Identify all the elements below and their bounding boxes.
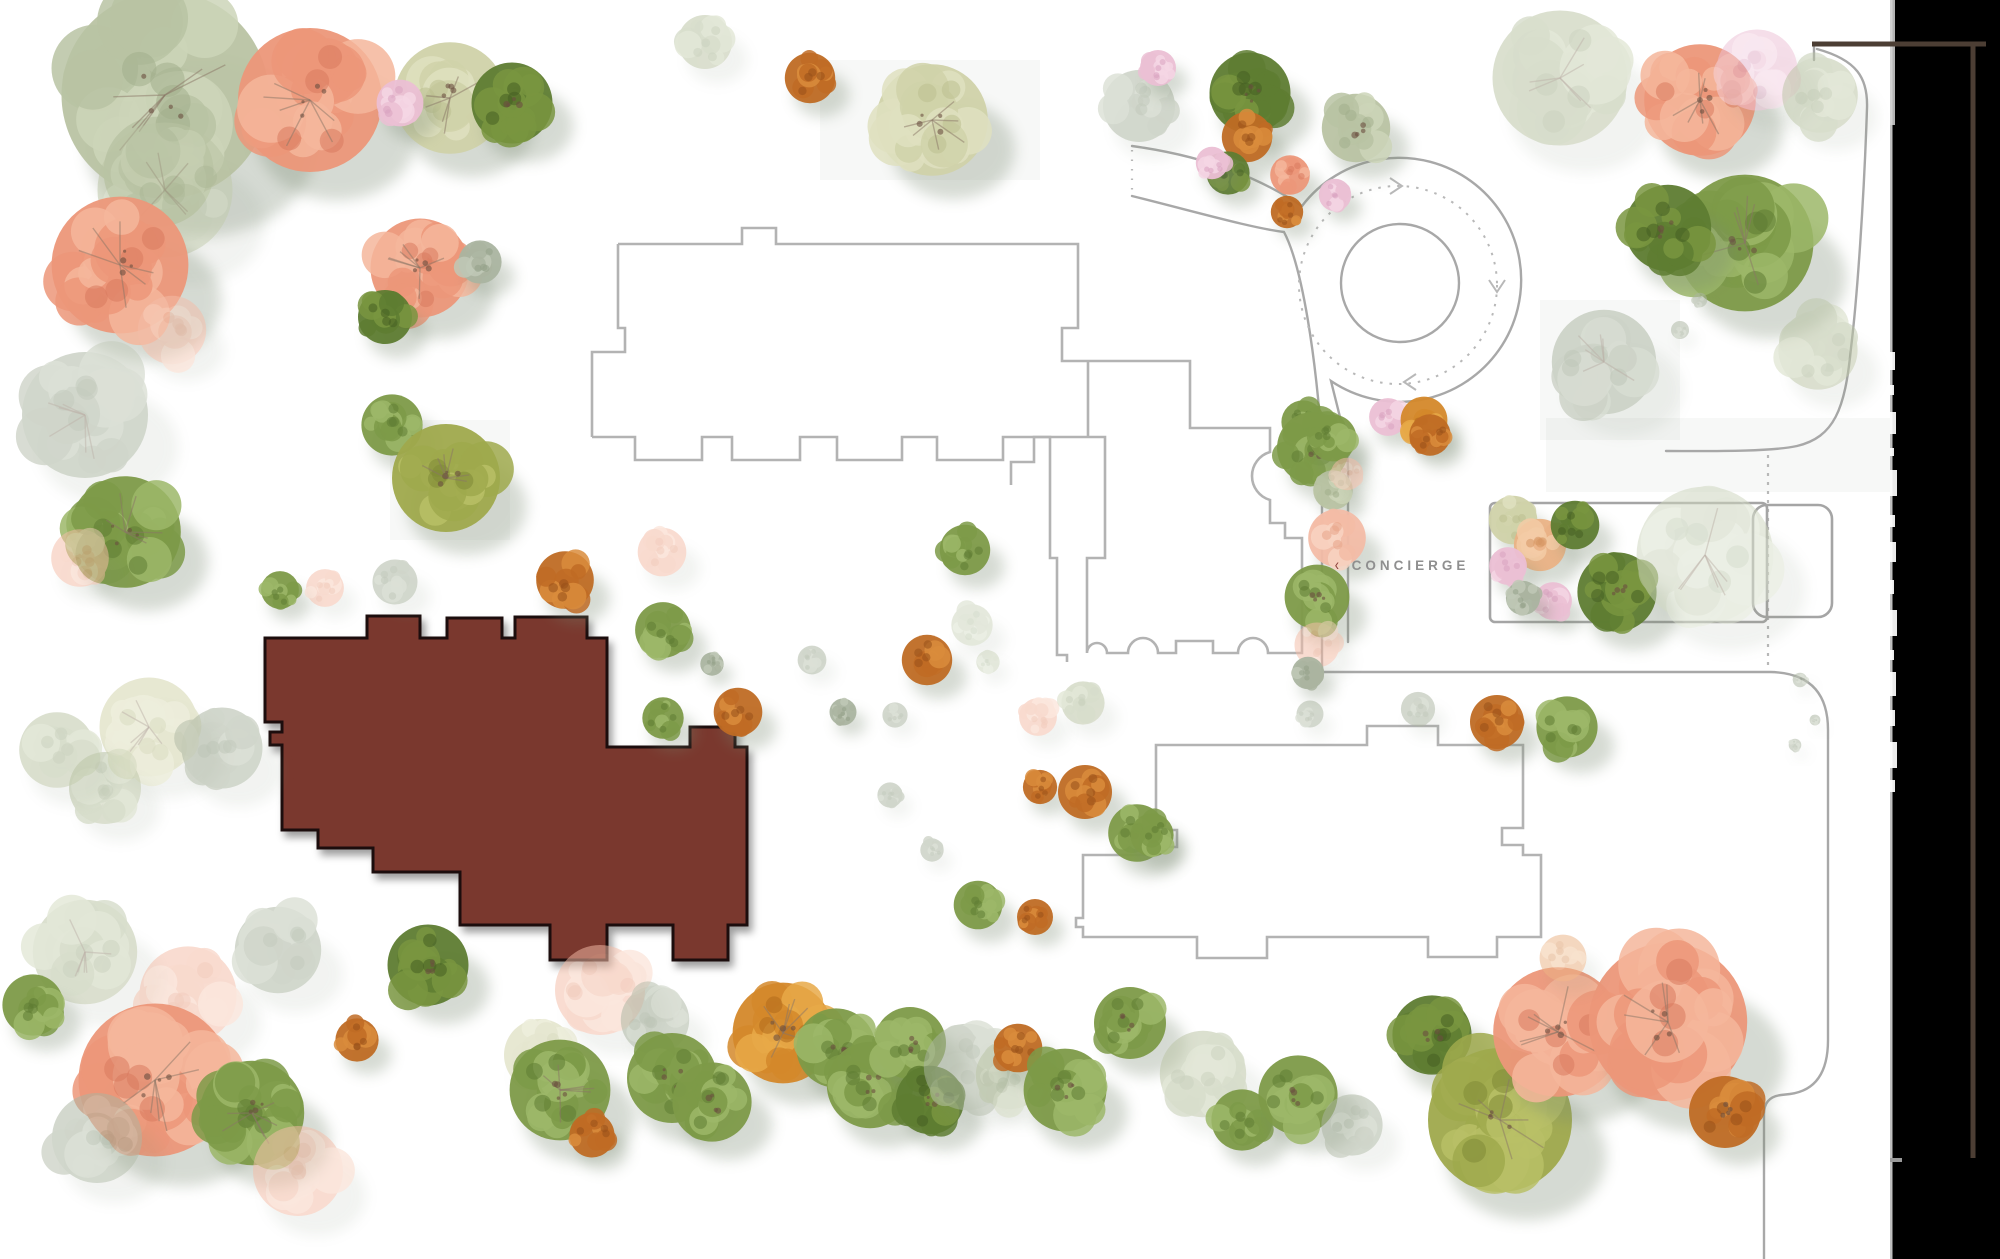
clipped-text-fragment <box>1890 780 1895 792</box>
tree <box>798 646 837 685</box>
tree <box>373 560 432 618</box>
trees <box>2 0 1878 1236</box>
tree <box>1470 695 1539 763</box>
clipped-text-fragment <box>1890 610 1897 636</box>
tree <box>259 571 311 621</box>
tree <box>1321 1094 1399 1171</box>
clipped-text-fragment <box>1890 742 1897 768</box>
clipped-text-fragment <box>1890 672 1896 696</box>
clipped-text-fragment <box>1890 470 1897 496</box>
site-plan-svg <box>0 0 2000 1259</box>
tree <box>1322 92 1409 179</box>
roundabout-island <box>1341 224 1459 342</box>
clipped-text-fragment <box>1890 515 1895 527</box>
tree <box>334 1014 392 1074</box>
tree <box>877 782 912 817</box>
tree <box>1493 11 1661 173</box>
clipped-text-fragment <box>1890 710 1895 726</box>
clipped-text-fragment <box>1890 542 1896 562</box>
site-plan-stage: ‹ CONCIERGE <box>0 0 2000 1259</box>
tree <box>674 15 747 83</box>
clipped-text-fragment <box>1890 448 1894 456</box>
clipped-text-fragment <box>1890 580 1894 594</box>
chevron-left-icon: ‹ <box>1335 555 1339 575</box>
tree <box>253 1126 366 1236</box>
tree <box>388 925 490 1025</box>
tree <box>830 698 867 736</box>
tree <box>1536 696 1615 773</box>
tree <box>902 635 967 699</box>
clipped-text-fragment <box>1890 352 1895 370</box>
tree <box>935 522 1005 590</box>
tree <box>1788 739 1807 760</box>
panel-bottom-dash <box>1890 1158 1902 1162</box>
tree <box>700 651 732 685</box>
clipped-text-fragment <box>1890 412 1896 434</box>
tree <box>1810 715 1827 733</box>
clipped-text-fragment <box>1890 650 1894 660</box>
flow-arrow-west <box>1404 374 1416 390</box>
panel-edge-strip-top <box>1890 0 1895 125</box>
tree <box>1409 414 1463 468</box>
flow-arrow-east <box>1390 178 1402 194</box>
building-outline-north <box>618 228 1302 653</box>
roundabout-flow-dashed-circle <box>1299 186 1497 384</box>
tree <box>1782 52 1878 150</box>
right-panel <box>1812 0 2000 1259</box>
tree <box>1793 673 1815 696</box>
tree <box>1319 179 1362 222</box>
clipped-text-fragment <box>1890 385 1894 395</box>
tree <box>638 526 701 590</box>
tree <box>954 881 1017 943</box>
tree <box>305 569 356 619</box>
tree <box>635 602 707 672</box>
concierge-link[interactable]: ‹ CONCIERGE <box>1334 555 1469 575</box>
tree <box>642 697 696 751</box>
tree <box>1295 701 1333 738</box>
tree <box>920 836 952 871</box>
tree <box>536 549 610 623</box>
building-outline-north-left-edge <box>592 244 625 437</box>
concierge-label: CONCIERGE <box>1352 558 1470 573</box>
tree <box>1017 899 1065 947</box>
tree <box>882 702 917 737</box>
tree <box>951 600 1005 658</box>
right-panel-background <box>1890 0 2000 1259</box>
tree <box>976 650 1008 684</box>
tree <box>1401 692 1446 738</box>
